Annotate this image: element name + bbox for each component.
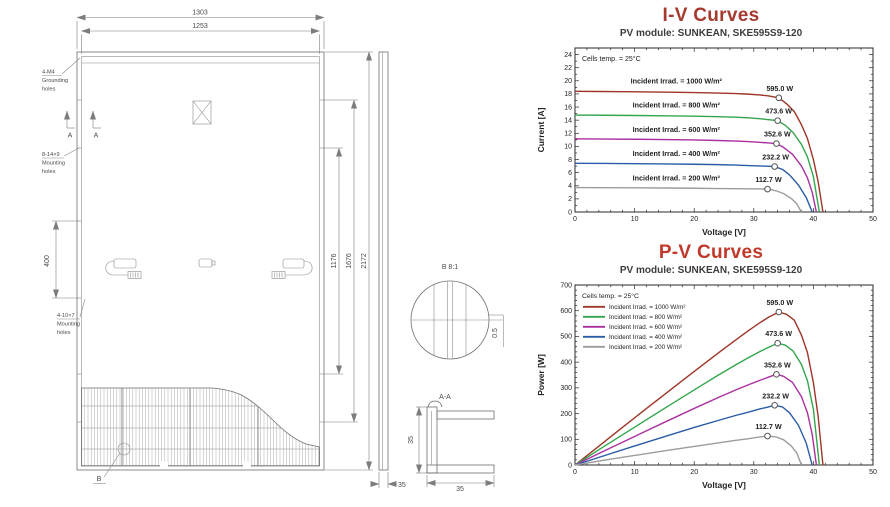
mpp-label: 232.2 W [762,153,789,162]
mpp-label: 232.2 W [762,391,789,400]
svg-text:4-M4: 4-M4 [42,70,55,76]
svg-text:20: 20 [564,78,572,85]
mpp-label: 112.7 W [755,422,782,431]
mpp-label: 595.0 W [766,84,793,93]
svg-text:20: 20 [690,469,698,476]
series-inline-label: Incident Irrad. = 800 W/m² [633,101,721,110]
mpp-label: 352.6 W [764,130,791,139]
front-view: B [77,52,324,484]
svg-text:Mounting: Mounting [42,161,65,167]
mpp-marker [776,95,782,101]
section-cut-markers: A A [67,111,101,140]
dim-section-width: 35 [456,486,464,493]
connector-middle [199,259,215,267]
svg-text:8-14×9: 8-14×9 [42,152,60,158]
svg-text:700: 700 [560,282,572,289]
mpp-label: 473.6 W [765,329,792,338]
callout-labels: 4-M4 Grounding holes A A 8-14×9 Mounting… [42,58,101,336]
svg-text:600: 600 [560,308,572,315]
svg-text:12: 12 [564,131,572,138]
mpp-marker [774,372,780,378]
mpp-marker [772,402,778,408]
legend-entry: Incident Irrad. = 800 W/m² [609,314,682,321]
svg-text:30: 30 [750,216,758,223]
grounding-holes-label: 4-M4 Grounding holes [42,58,80,93]
dim-height-total: 2172 [361,253,368,269]
mpp-label: 352.6 W [764,360,791,369]
svg-text:Mounting: Mounting [57,322,80,328]
svg-text:100: 100 [560,437,572,444]
drawing-panel: B 1303 1253 1176 1676 [0,0,532,507]
pv-chart-section: P-V Curves PV module: SUNKEAN, SKE595S9-… [532,242,890,491]
svg-text:4-10×7: 4-10×7 [57,313,75,319]
svg-text:4: 4 [568,183,572,190]
cells-temp-note: Cells temp. = 25°C [582,292,639,300]
svg-text:10: 10 [564,144,572,151]
section-marker-a1: A [68,133,73,140]
svg-text:16: 16 [564,104,572,111]
mpp-marker [765,433,771,439]
mpp-marker [775,118,781,124]
series-line [575,436,801,465]
svg-text:0: 0 [568,209,572,216]
svg-text:8: 8 [568,157,572,164]
svg-text:50: 50 [869,469,877,476]
svg-text:0: 0 [568,462,572,469]
svg-text:400: 400 [560,359,572,366]
mpp-marker [774,141,780,147]
plot-frame [575,285,873,465]
y-axis-label: Current [A] [536,107,546,152]
junction-box-symbol [193,101,211,124]
svg-text:500: 500 [560,334,572,341]
series-line [575,374,816,465]
svg-text:300: 300 [560,385,572,392]
iv-chart-subtitle: PV module: SUNKEAN, SKE595S9-120 [532,28,890,39]
x-axis-label: Voltage [V] [702,480,746,490]
dim-hole-pitch: 400 [44,255,51,267]
mounting-holes-upper-label: 8-14×9 Mounting holes [42,148,79,175]
iv-chart-section: I-V Curves PV module: SUNKEAN, SKE595S9-… [532,5,890,238]
svg-text:0: 0 [573,469,577,476]
legend-entry: Incident Irrad. = 400 W/m² [609,334,682,341]
svg-text:22: 22 [564,65,572,72]
series-inline-label: Incident Irrad. = 600 W/m² [633,125,721,134]
section-a-a: A-A 35 35 [408,394,494,493]
svg-text:10: 10 [631,216,639,223]
cell-grid-area [82,383,320,467]
svg-text:10: 10 [631,469,639,476]
datasheet-page: B 1303 1253 1176 1676 [0,0,890,507]
detail-b-view: B 8:1 0.5 [411,264,504,359]
dim-width-total: 1303 [192,10,208,17]
legend-entry: Incident Irrad. = 1000 W/m² [609,304,685,311]
series-inline-label: Incident Irrad. = 400 W/m² [633,149,721,158]
legend-entry: Incident Irrad. = 600 W/m² [609,324,682,331]
pv-chart-title: P-V Curves [532,242,890,264]
side-view: 35 [371,52,406,489]
dim-side-frame-width: 35 [398,482,406,489]
mpp-marker [776,309,782,315]
svg-text:holes: holes [57,330,71,336]
charts-column: I-V Curves PV module: SUNKEAN, SKE595S9-… [532,0,890,507]
series-inline-label: Incident Irrad. = 200 W/m² [633,174,721,183]
mpp-label: 473.6 W [765,107,792,116]
mpp-label: 595.0 W [766,298,793,307]
svg-text:24: 24 [564,52,572,59]
section-marker-a2: A [94,133,99,140]
x-axis-label: Voltage [V] [702,227,746,237]
iv-chart-title: I-V Curves [532,5,890,27]
detail-view-title: B 8:1 [442,264,458,271]
svg-text:6: 6 [568,170,572,177]
svg-text:holes: holes [42,169,56,175]
series-inline-label: Incident Irrad. = 1000 W/m² [631,76,723,85]
dim-height-inner-holes: 1176 [331,253,338,268]
mpp-marker [775,340,781,346]
section-view-title: A-A [439,394,451,401]
svg-text:40: 40 [810,216,818,223]
svg-text:holes: holes [42,87,56,93]
y-axis-label: Power [W] [536,354,546,396]
dim-cell-gap: 0.5 [492,328,499,338]
connector-left [106,259,141,279]
dim-section-height: 35 [408,436,415,444]
svg-text:Grounding: Grounding [42,78,68,84]
svg-text:14: 14 [564,117,572,124]
svg-text:2: 2 [568,196,572,203]
pv-chart-subtitle: PV module: SUNKEAN, SKE595S9-120 [532,265,890,276]
mpp-label: 112.7 W [755,175,782,184]
mpp-marker [765,186,771,192]
mpp-marker [772,164,778,170]
svg-text:20: 20 [690,216,698,223]
iv-chart-canvas: 01020304050024681012141618202224Voltage … [535,40,887,238]
legend-entry: Incident Irrad. = 200 W/m² [609,344,682,351]
svg-text:40: 40 [810,469,818,476]
series-line [575,405,812,465]
mounting-holes-lower-label: 4-10×7 Mounting holes [57,299,85,336]
pv-chart-canvas: 010203040500100200300400500600700Voltage… [535,277,887,491]
svg-text:30: 30 [750,469,758,476]
detail-b-marker-label: B [97,476,102,483]
svg-text:18: 18 [564,91,572,98]
connector-right [272,259,312,279]
cells-temp-note: Cells temp. = 25°C [582,55,641,63]
dim-height-outer-holes: 1676 [346,253,353,269]
pv-module-technical-drawing: B 1303 1253 1176 1676 [0,0,532,507]
svg-text:200: 200 [560,411,572,418]
svg-text:0: 0 [573,216,577,223]
dim-width-glass: 1253 [192,23,208,30]
svg-text:50: 50 [869,216,877,223]
